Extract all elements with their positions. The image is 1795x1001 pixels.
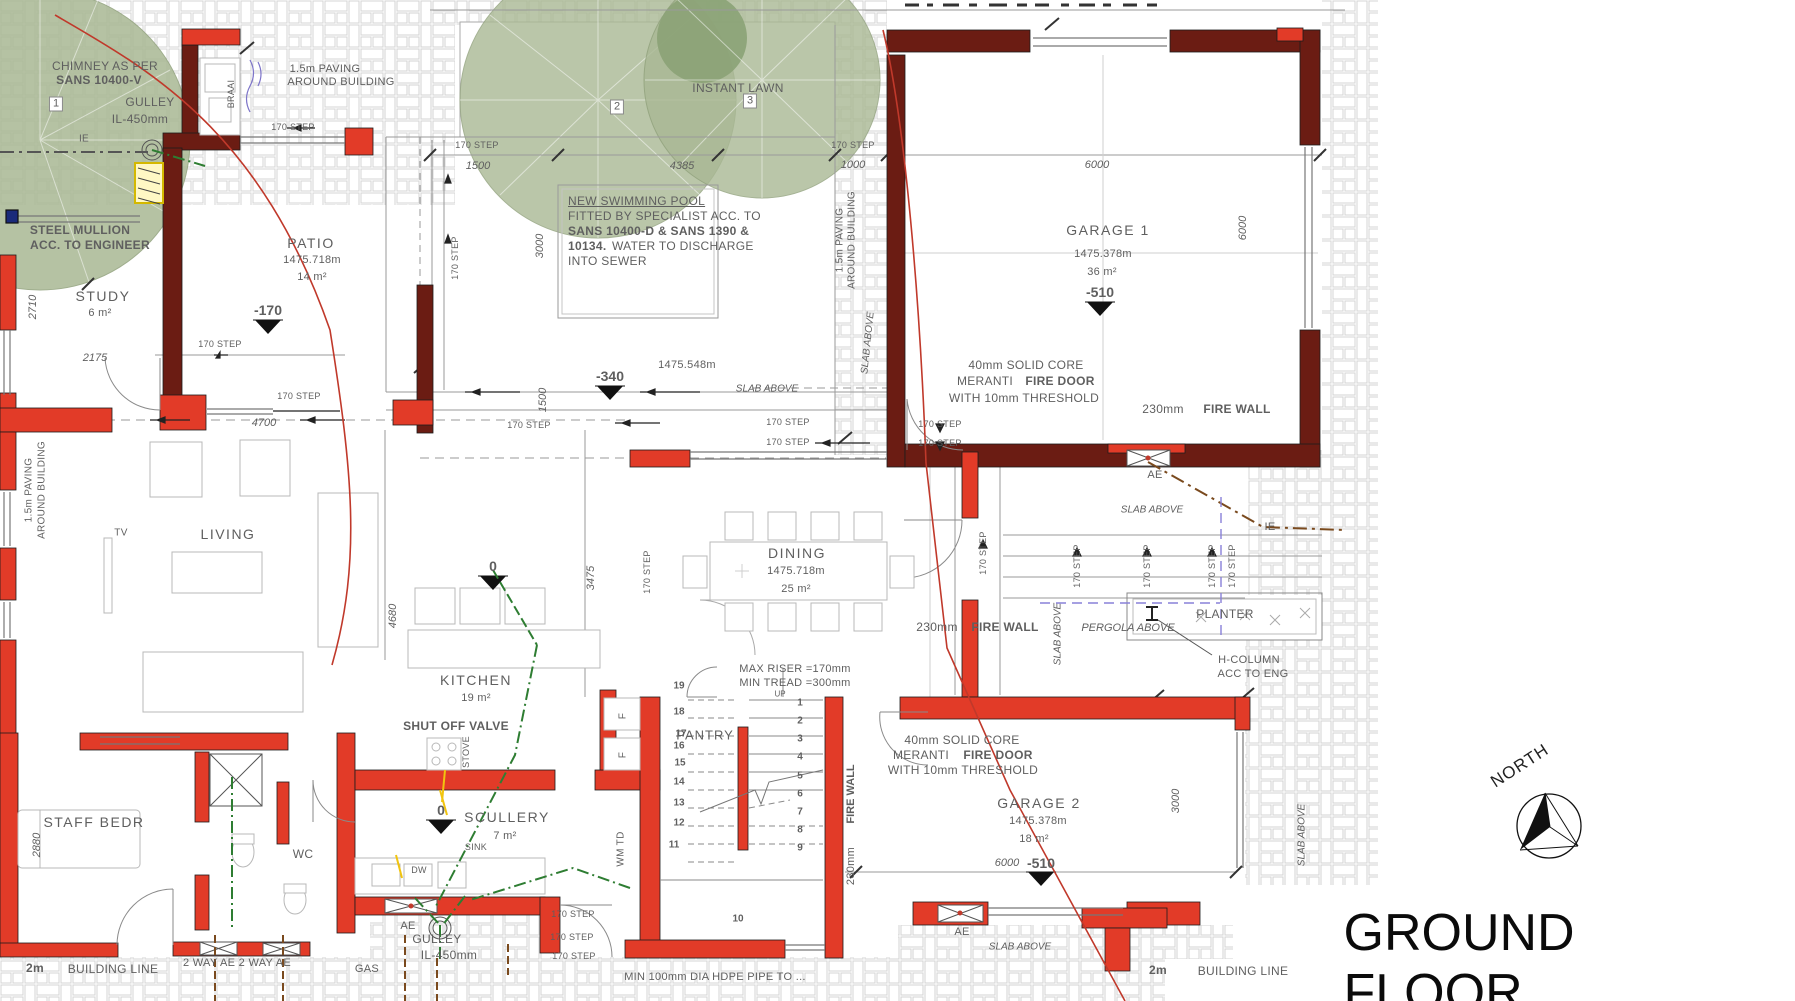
stair-13: 13 [673, 798, 684, 809]
level-minus170: -170 [254, 302, 282, 318]
garage2-num: 1475.378m [1009, 815, 1067, 827]
step-v-c: 170 STEP [1072, 544, 1082, 587]
pergola: PERGOLA ABOVE [1081, 622, 1174, 634]
dim-1500-pool: 1500 [537, 388, 549, 412]
stair-7: 7 [797, 807, 803, 818]
level-minus510-g2: -510 [1027, 855, 1055, 871]
kitchen-fixtures [355, 588, 640, 894]
fridge-f2: F [618, 752, 629, 758]
dim-3000-g2: 3000 [1170, 789, 1182, 813]
firedoor1-3: WITH 10mm THRESHOLD [949, 391, 1099, 405]
stair-1: 1 [797, 698, 803, 709]
living-furniture [104, 440, 378, 712]
gas: GAS [355, 963, 379, 975]
mullion-1: STEEL MULLION [30, 223, 130, 237]
stair-17: 17 [675, 729, 686, 740]
slab-above-court: SLAB ABOVE [1121, 505, 1183, 516]
max-riser: MAX RISER =170mm [739, 663, 850, 675]
dining-area: 25 m² [781, 583, 811, 595]
room-living: LIVING [201, 526, 256, 542]
room-patio: PATIO [287, 235, 334, 251]
pool-note-4a: 10134. [568, 239, 607, 253]
paving-v1b: AROUND BUILDING [847, 191, 858, 289]
stair-12: 12 [673, 818, 684, 829]
wm-td: WM TD [616, 831, 627, 866]
ae-g2: AE [954, 926, 969, 938]
step-v-d: 170 STEP [1142, 544, 1152, 587]
pool-note-4b: WATER TO DISCHARGE [612, 239, 754, 253]
room-kitchen: KITCHEN [440, 672, 512, 688]
stove: STOVE [461, 736, 471, 768]
step-a: 170 STEP [271, 122, 314, 132]
planter: PLANTER [1196, 607, 1253, 621]
step-i: 170 STEP [918, 419, 961, 429]
step-v-b: 170 STEP [978, 531, 988, 574]
level-minus510-g1: -510 [1086, 284, 1114, 300]
stair-5: 5 [797, 771, 803, 782]
tv: TV [114, 528, 127, 539]
study-area: 6 m² [88, 307, 111, 319]
firedoor2-2b: FIRE DOOR [963, 748, 1032, 762]
ae-court: AE [1147, 469, 1162, 481]
tree-3-tag: 3 [743, 94, 757, 109]
hcolumn-1: H-COLUMN [1218, 654, 1280, 666]
ae-box-scullery [385, 899, 437, 913]
slab-above-g2: SLAB ABOVE [989, 942, 1051, 953]
chimney-note-1: CHIMNEY AS PER [52, 59, 158, 73]
shower-symbol [210, 754, 262, 806]
dim-1000: 1000 [841, 159, 865, 171]
stair-11: 11 [669, 840, 680, 851]
stair-4: 4 [797, 752, 803, 763]
building-line-2b: BUILDING LINE [1198, 964, 1289, 978]
page-title: GROUND FLOOR [1344, 903, 1645, 1001]
tree-2-tag: 2 [610, 100, 624, 115]
dim-3475: 3475 [585, 566, 597, 590]
step-f: 170 STEP [507, 420, 550, 430]
step-v-a: 170 STEP [450, 236, 460, 279]
pool-note-3: SANS 10400-D & SANS 1390 & [568, 224, 749, 238]
room-staff-bedr: STAFF BEDR [43, 814, 144, 830]
dining-num: 1475.718m [767, 565, 825, 577]
level-0-scullery: 0 [437, 802, 445, 818]
db-box [135, 163, 163, 204]
firedoor1-2b: FIRE DOOR [1025, 374, 1094, 388]
north-compass-icon [1517, 793, 1581, 858]
gulley-2-il: IL-450mm [421, 948, 477, 962]
building-line-2a: 2m [1149, 963, 1167, 977]
step-v-f: 170 STEP [1227, 544, 1237, 587]
dim-2710: 2710 [27, 295, 39, 319]
instant-lawn: INSTANT LAWN [692, 81, 783, 95]
stair-3: 3 [797, 734, 803, 745]
step-k: 170 STEP [551, 909, 594, 919]
firewall-g2v-a: 230mm [845, 847, 857, 885]
dim-2880: 2880 [31, 833, 43, 857]
stair-6: 6 [797, 789, 803, 800]
paving-note-1a: 1.5m PAVING [290, 63, 361, 75]
room-wc: WC [293, 847, 314, 861]
firewall-g2h-a: 230mm [916, 620, 958, 634]
firewall-g1-b: FIRE WALL [1203, 402, 1270, 416]
stair-14: 14 [673, 777, 684, 788]
step-h: 170 STEP [766, 437, 809, 447]
gulley-1-il: IL-450mm [112, 112, 168, 126]
slab-above-right: SLAB ABOVE [1297, 804, 1308, 866]
dw: DW [411, 865, 427, 875]
hcolumn-2: ACC TO ENG [1217, 668, 1288, 680]
firewall-g1-a: 230mm [1142, 402, 1184, 416]
ae-box-garage2 [938, 905, 983, 922]
up: UP [774, 690, 785, 699]
dim-6000-g2: 6000 [995, 857, 1019, 869]
paving-v2b: AROUND BUILDING [37, 441, 48, 539]
gulley-2: GULLEY [412, 932, 461, 946]
room-garage1: GARAGE 1 [1066, 222, 1150, 238]
step-d: 170 STEP [455, 140, 498, 150]
stair-18: 18 [673, 707, 684, 718]
ae-box-wall-1 [200, 942, 237, 955]
paving-note-1b: AROUND BUILDING [287, 76, 394, 88]
building-line-1a: 2m [26, 961, 44, 975]
stair-8: 8 [797, 825, 803, 836]
kitchen-area: 19 m² [461, 692, 491, 704]
level-0-kitchen: 0 [489, 558, 497, 574]
dim-4680: 4680 [387, 604, 399, 628]
building-line-1b: BUILDING LINE [68, 962, 159, 976]
step-j: 170 STEP [918, 438, 961, 448]
step-b: 170 STEP [198, 339, 241, 349]
garage1-area: 36 m² [1087, 266, 1117, 278]
firedoor1-2a: MERANTI [957, 374, 1013, 388]
stair-2: 2 [797, 716, 803, 727]
step-c: 170 STEP [277, 391, 320, 401]
slab-above-pool: SLAB ABOVE [736, 384, 798, 395]
h-column-symbol [1146, 607, 1158, 620]
step-l: 170 STEP [550, 932, 593, 942]
garage2-area: 18 m² [1019, 833, 1049, 845]
two-way-ae: 2 WAY AE 2 WAY AE [183, 957, 291, 969]
chimney-note-2: SANS 10400-V [56, 73, 142, 87]
room-dining: DINING [768, 545, 826, 561]
stair-15: 15 [674, 758, 685, 769]
firewall-g2h-b: FIRE WALL [971, 620, 1038, 634]
ie-1: IE [79, 134, 89, 145]
level-minus340: -340 [596, 368, 624, 384]
sink: SINK [465, 842, 487, 852]
firedoor1-1: 40mm SOLID CORE [968, 358, 1083, 372]
pool-note-1: NEW SWIMMING POOL [568, 194, 705, 208]
dim-3000-pool: 3000 [534, 234, 546, 258]
firedoor2-1: 40mm SOLID CORE [904, 733, 1019, 747]
pergola-lines [1040, 497, 1221, 640]
pool-note-5: INTO SEWER [568, 254, 647, 268]
room-garage2: GARAGE 2 [997, 795, 1081, 811]
pool-note-2: FITTED BY SPECIALIST ACC. TO [568, 209, 761, 223]
shutoff-valve: SHUT OFF VALVE [403, 719, 509, 733]
dim-4700: 4700 [252, 417, 276, 429]
tree-1-tag: 1 [49, 97, 63, 112]
braai: BRAAI [226, 80, 236, 109]
num-1475548: 1475.548m [658, 359, 716, 371]
step-g: 170 STEP [766, 417, 809, 427]
patio-area: 14 m² [297, 271, 327, 283]
stair-19: 19 [673, 681, 684, 692]
ae-box-wall-2 [263, 943, 300, 955]
ie-2: IE [1265, 521, 1276, 533]
stair-10: 10 [732, 914, 743, 925]
paving-v1a: 1.5m PAVING [835, 208, 846, 273]
dim-4385: 4385 [670, 160, 694, 172]
dim-6000-g1: 6000 [1085, 159, 1109, 171]
stair-16: 16 [673, 741, 684, 752]
hdpe-note: MIN 100mm DIA HDPE PIPE TO ... [624, 971, 806, 983]
dim-1500: 1500 [466, 160, 490, 172]
patio-num: 1475.718m [283, 254, 341, 266]
floor-plan-drawing [0, 0, 1795, 1001]
step-v-g: 170 STEP [642, 550, 652, 593]
mullion-2: ACC. TO ENGINEER [30, 238, 150, 252]
stair-9: 9 [797, 843, 803, 854]
firedoor2-3: WITH 10mm THRESHOLD [888, 763, 1038, 777]
step-m: 170 STEP [552, 951, 595, 961]
dim-2175: 2175 [83, 352, 107, 364]
ae-scullery: AE [400, 920, 415, 932]
slab-above-v2: SLAB ABOVE [1053, 603, 1064, 665]
gulley-1: GULLEY [125, 95, 174, 109]
step-v-e: 170 STEP [1207, 544, 1217, 587]
paving-v2a: 1.5m PAVING [24, 458, 35, 523]
step-e: 170 STEP [831, 140, 874, 150]
room-scullery: SCULLERY [464, 809, 550, 825]
scullery-area: 7 m² [493, 830, 516, 842]
floor-plan-page: CHIMNEY AS PERSANS 10400-VGULLEYIL-450mm… [0, 0, 1795, 1001]
firedoor2-2a: MERANTI [893, 748, 949, 762]
min-tread: MIN TREAD =300mm [739, 677, 850, 689]
fridge-f1: F [618, 713, 629, 719]
garage1-num: 1475.378m [1074, 248, 1132, 260]
ae-box-garage1 [1127, 450, 1170, 466]
room-study: STUDY [76, 288, 131, 304]
dim-6000-g1v: 6000 [1237, 216, 1249, 240]
firewall-g2v-b: FIRE WALL [845, 764, 857, 823]
